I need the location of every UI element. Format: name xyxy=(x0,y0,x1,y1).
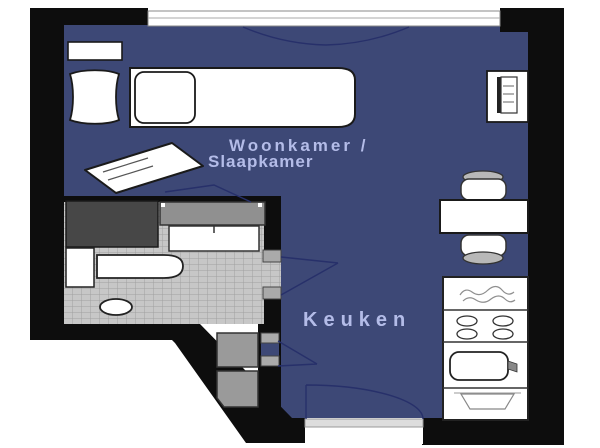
dining-table xyxy=(440,200,528,233)
wall-left xyxy=(30,8,64,340)
kitchen-label: Keuken xyxy=(303,309,411,331)
bed-pillow-inner xyxy=(135,72,195,123)
toilet xyxy=(100,299,132,315)
wall-top-left xyxy=(30,8,148,25)
hall-closet-top xyxy=(217,333,258,367)
bathroom-doorway xyxy=(264,262,281,287)
hall-closet-bottom xyxy=(217,371,258,407)
wall-shelf xyxy=(68,42,122,60)
chair-bottom-back xyxy=(463,252,503,264)
vanity-corner-dot-left xyxy=(161,203,165,207)
wall-bathroom-kitchen xyxy=(264,196,281,419)
vanity-corner-dot-right xyxy=(258,203,262,207)
bed-pillow-left xyxy=(70,70,119,124)
tv-cabinet-door xyxy=(501,77,517,113)
closet-doorway xyxy=(261,343,279,356)
bathroom-door-jamb-top xyxy=(263,250,281,262)
entrance-threshold xyxy=(305,419,423,427)
wall-bottom-right xyxy=(422,418,564,445)
closet-door-jamb-bottom xyxy=(261,356,279,366)
floorplan-svg: Woonkamer / Slaapkamer Keuken xyxy=(0,0,600,448)
chair-top-seat xyxy=(461,179,506,200)
wall-right xyxy=(528,8,564,445)
vanity-cabinet xyxy=(160,202,265,225)
bathroom-door-jamb-bottom xyxy=(263,287,281,299)
bathtub xyxy=(97,255,183,278)
washing-machine xyxy=(66,248,94,287)
kitchen-counter xyxy=(443,277,528,420)
living-bedroom-label-line2: Slaapkamer xyxy=(208,152,313,171)
tv-cabinet-panel xyxy=(497,77,501,113)
wardrobe xyxy=(66,201,158,247)
floorplan-image: Woonkamer / Slaapkamer Keuken xyxy=(0,0,600,448)
kitchen-sink xyxy=(450,352,508,380)
closet-door-jamb-top xyxy=(261,333,279,343)
